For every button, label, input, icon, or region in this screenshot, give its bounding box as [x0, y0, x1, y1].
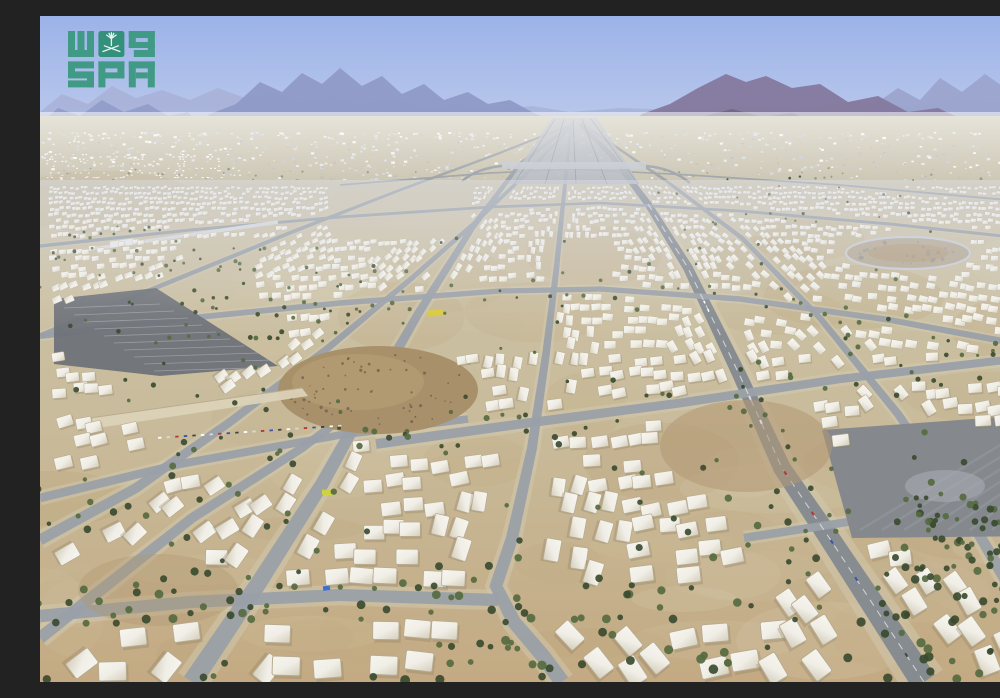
haze-layer	[40, 112, 1000, 336]
dirt-clearing-right	[660, 400, 832, 492]
logo-arabic-row	[68, 31, 155, 57]
photo-scene	[40, 16, 1000, 682]
logo-letter-S	[68, 61, 94, 87]
seen-glyph	[68, 31, 94, 57]
rocky-hill	[278, 346, 478, 434]
aerial-photo	[40, 16, 1000, 682]
palm-emblem-icon	[98, 31, 124, 57]
